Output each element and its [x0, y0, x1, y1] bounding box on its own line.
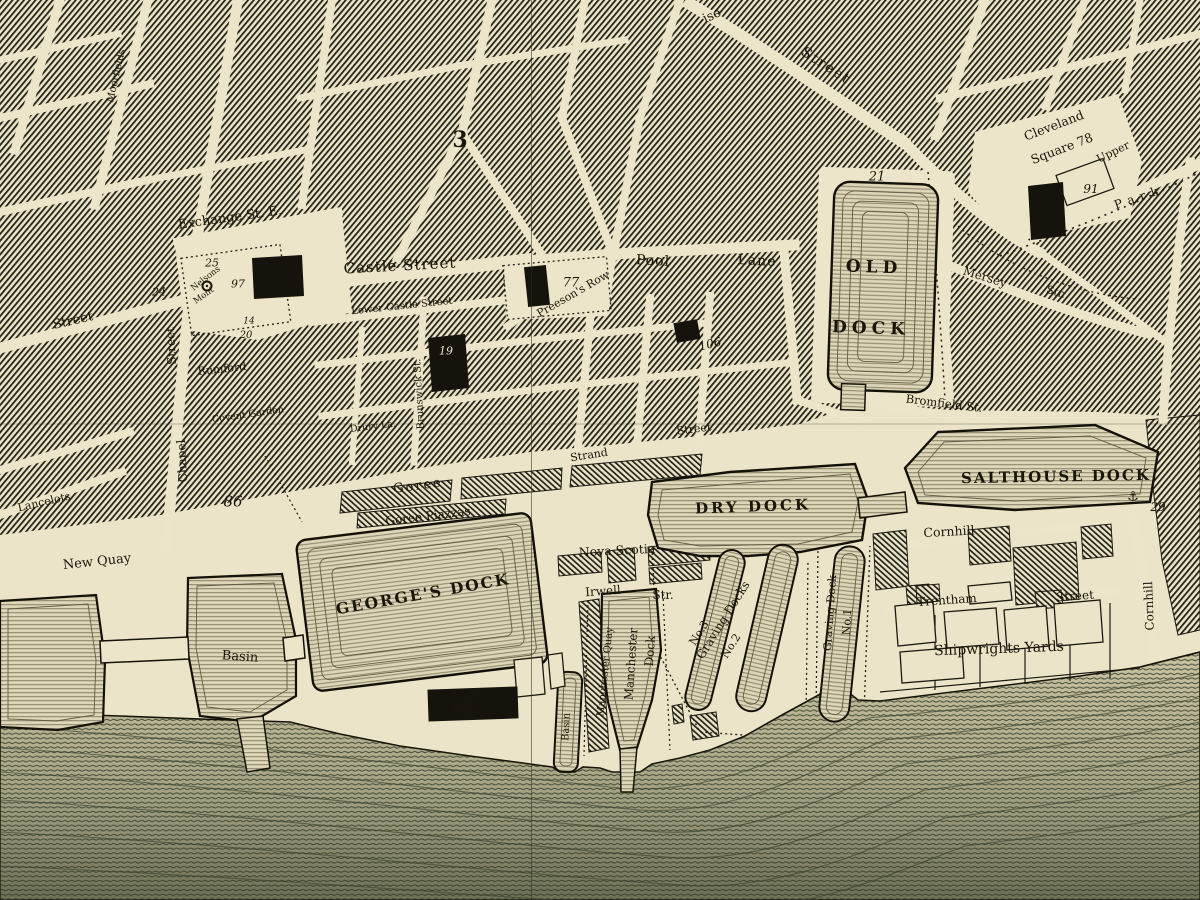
- dry-dock-shape: [648, 464, 868, 556]
- cleveland-square-building: [1028, 182, 1066, 240]
- basin-shape: [187, 574, 296, 722]
- exchange-church-building: [252, 255, 304, 299]
- georges-dock-shape: [296, 512, 549, 692]
- st-georges-church-building: [524, 265, 550, 307]
- map-canvas: Exchange St. E.Castle StreetLower Castle…: [0, 0, 1200, 900]
- salthouse-dock-shape: [905, 425, 1158, 510]
- plot-62-building: [427, 686, 518, 721]
- old-dock-shape: [827, 181, 939, 412]
- st-georges-plaza: [504, 258, 616, 320]
- plot-19-building: [428, 334, 469, 392]
- georges-basin-channel: [283, 635, 305, 661]
- map-engraving: [0, 0, 1200, 900]
- west-dock-channel: [100, 637, 189, 663]
